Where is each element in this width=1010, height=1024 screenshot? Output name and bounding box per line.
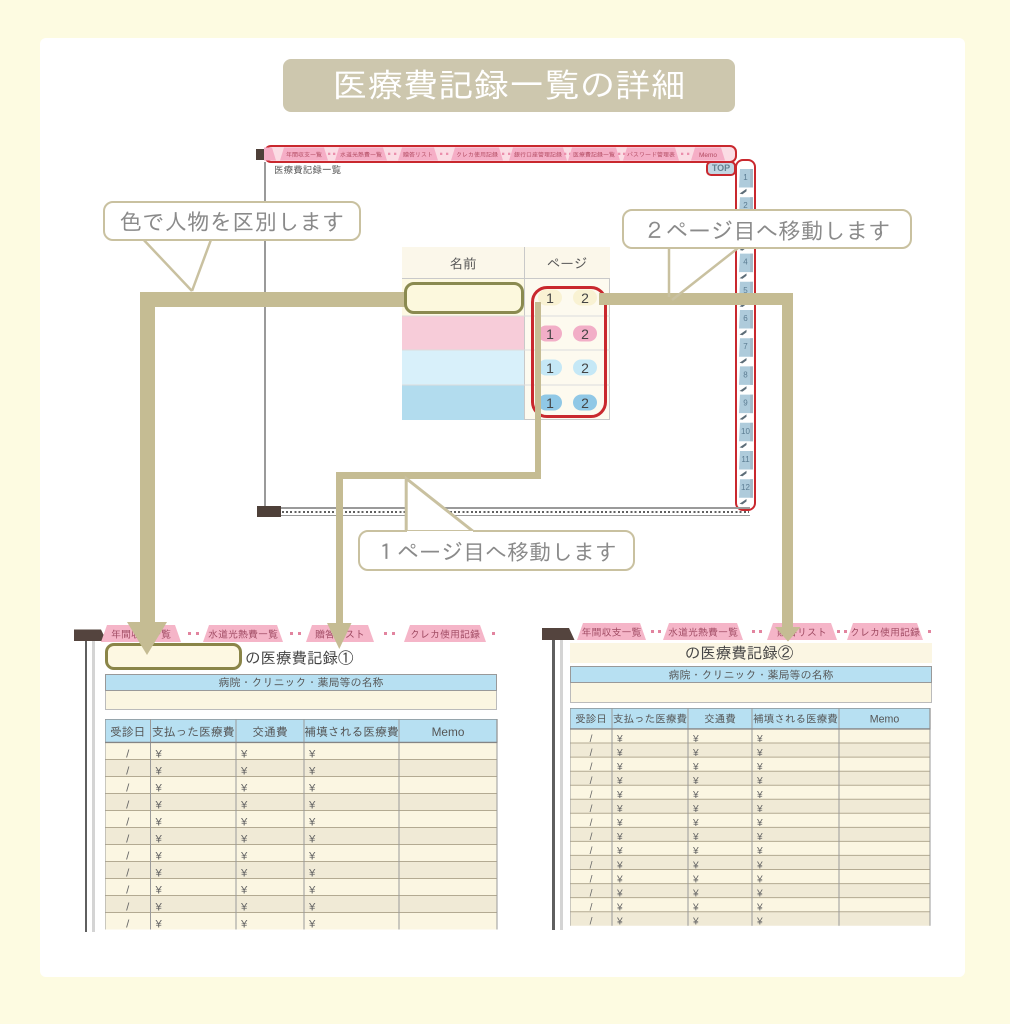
svg-text:/: /	[590, 917, 593, 928]
svg-text:¥: ¥	[692, 917, 699, 928]
svg-text:¥: ¥	[616, 917, 623, 928]
svg-text:Memo: Memo	[870, 714, 900, 726]
svg-text:¥: ¥	[756, 917, 763, 928]
